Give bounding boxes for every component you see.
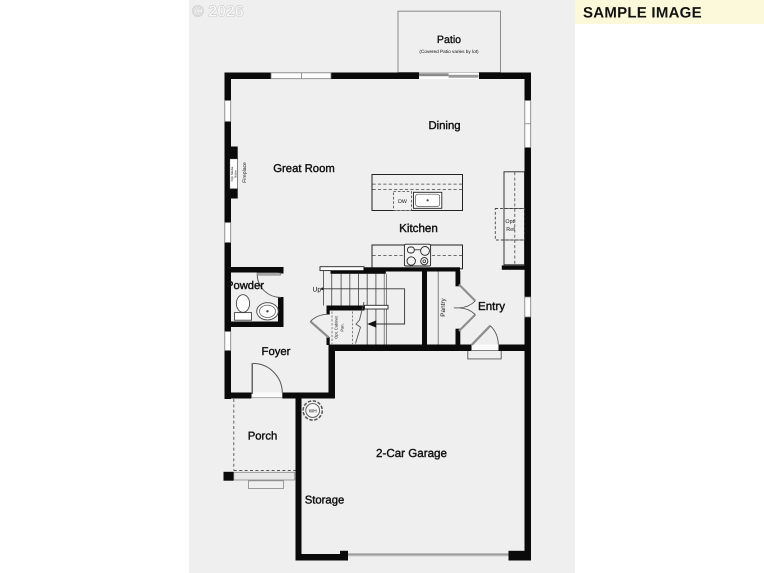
svg-text:Fireplace: Fireplace — [242, 162, 248, 183]
svg-text:Patio: Patio — [437, 34, 461, 46]
svg-text:Entry: Entry — [478, 300, 505, 313]
svg-text:Foyer: Foyer — [262, 346, 291, 358]
svg-text:Powder: Powder — [226, 280, 264, 292]
svg-text:Pantry: Pantry — [440, 297, 447, 316]
svg-text:Niche: Niche — [234, 170, 238, 178]
svg-text:Up: Up — [313, 286, 322, 293]
svg-text:Storage: Storage — [305, 495, 345, 507]
svg-text:Opt. Cabinet: Opt. Cabinet — [334, 315, 339, 338]
svg-text:SAMPLE IMAGE: SAMPLE IMAGE — [583, 5, 702, 22]
svg-text:Ref: Ref — [506, 227, 515, 233]
svg-text:Kitchen: Kitchen — [399, 222, 438, 235]
svg-text:WH: WH — [309, 408, 318, 414]
svg-text:DW: DW — [398, 199, 407, 205]
svg-text:2-Car Garage: 2-Car Garage — [376, 447, 447, 460]
svg-text:Porch: Porch — [248, 431, 278, 443]
svg-text:(Covered Patio varies by lot): (Covered Patio varies by lot) — [419, 49, 479, 54]
svg-text:Dining: Dining — [428, 120, 460, 132]
svg-text:Pan.: Pan. — [340, 323, 345, 331]
svg-text:Great Room: Great Room — [273, 163, 335, 175]
svg-text:© 2026: © 2026 — [192, 4, 244, 21]
svg-text:Opt.: Opt. — [505, 219, 515, 225]
